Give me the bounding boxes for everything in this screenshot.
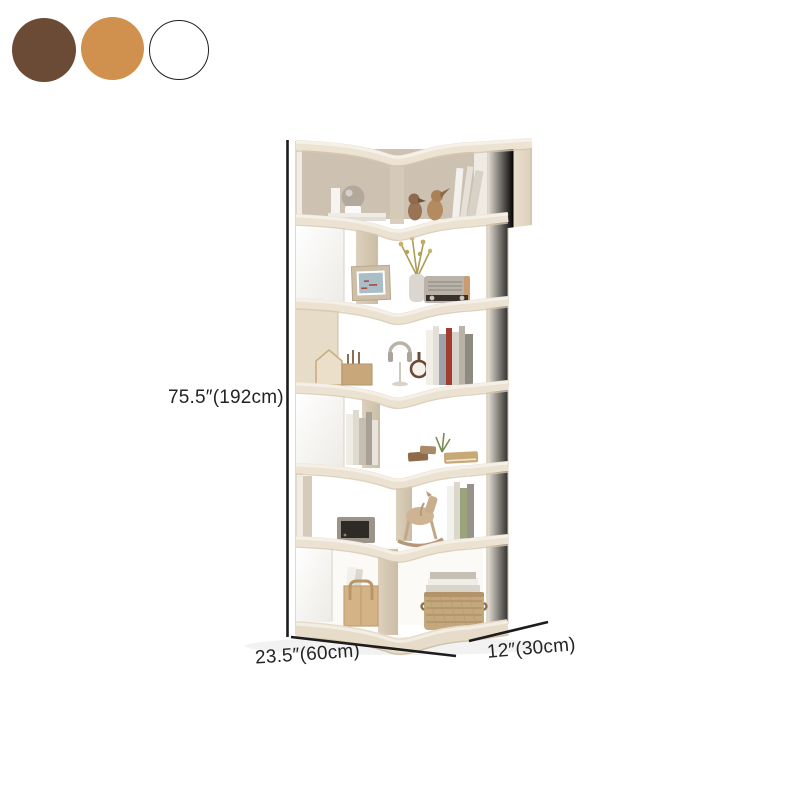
book-row-tier3 — [426, 326, 473, 385]
paper-stack — [328, 213, 386, 217]
bookshelf-illustration — [0, 0, 800, 800]
wicker-basket — [422, 572, 487, 630]
flat-book — [444, 451, 479, 464]
bulb-lamp — [342, 186, 365, 209]
speaker-box — [337, 517, 375, 543]
retro-radio — [424, 276, 470, 303]
wood-piece — [420, 446, 436, 455]
photo-frame — [351, 265, 390, 300]
candle — [331, 188, 340, 215]
product-image: 75.5″(192cm) 23.5″(60cm) 12″(30cm) — [0, 0, 800, 800]
magazine-stack — [426, 585, 480, 593]
height-dimension-label: 75.5″(192cm) — [168, 387, 282, 409]
book-row-tier5 — [447, 482, 474, 542]
